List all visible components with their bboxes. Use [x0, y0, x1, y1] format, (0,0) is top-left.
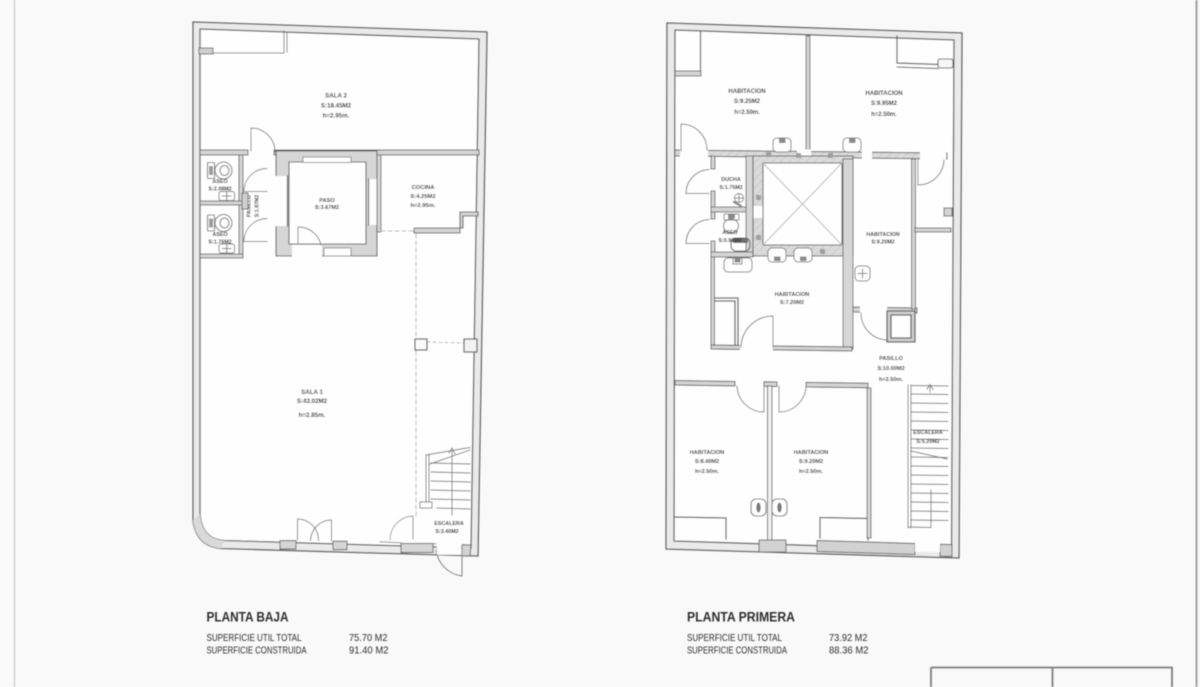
- svg-text:h=2.50m.: h=2.50m.: [871, 112, 897, 118]
- svg-text:PASILLO: PASILLO: [879, 356, 903, 362]
- svg-text:h=2.50m.: h=2.50m.: [734, 110, 760, 116]
- svg-text:h=2.85m.: h=2.85m.: [299, 412, 326, 419]
- svg-text:HABITACION: HABITACION: [775, 292, 810, 298]
- svg-text:S:1.75M2: S:1.75M2: [719, 185, 742, 191]
- svg-text:S:9.95M2: S:9.95M2: [871, 101, 898, 107]
- svg-text:SUPERFICIE UTIL TOTAL: SUPERFICIE UTIL TOTAL: [207, 633, 302, 644]
- svg-text:ESCALERA: ESCALERA: [913, 430, 943, 436]
- svg-text:SUPERFICIE CONSTRUIDA: SUPERFICIE CONSTRUIDA: [687, 646, 787, 657]
- svg-text:h=2.50m.: h=2.50m.: [695, 469, 720, 475]
- svg-text:ASEO: ASEO: [722, 230, 737, 236]
- svg-text:PASO: PASO: [319, 198, 335, 204]
- svg-text:COCINA: COCINA: [412, 185, 436, 191]
- svg-text:h=2.95m.: h=2.95m.: [323, 113, 350, 120]
- svg-text:SALA 1: SALA 1: [301, 389, 323, 396]
- svg-text:S:7.20M2: S:7.20M2: [780, 300, 804, 306]
- svg-text:75.70 M2: 75.70 M2: [349, 633, 388, 644]
- svg-text:S:8.40M2: S:8.40M2: [695, 459, 719, 465]
- svg-text:h=2.95m.: h=2.95m.: [411, 203, 436, 209]
- svg-text:HABITACION: HABITACION: [866, 232, 900, 238]
- svg-text:HABITACION: HABITACION: [794, 450, 829, 456]
- svg-text:S:9.20M2: S:9.20M2: [799, 459, 823, 465]
- svg-text:SUPERFICIE CONSTRUIDA: SUPERFICIE CONSTRUIDA: [207, 646, 307, 657]
- svg-text:S:3.40M2: S:3.40M2: [435, 529, 458, 535]
- svg-text:HABITACION: HABITACION: [690, 450, 725, 456]
- svg-text:73.92 M2: 73.92 M2: [829, 633, 868, 644]
- svg-text:S:9.25M2: S:9.25M2: [734, 99, 761, 105]
- svg-text:HABITACION: HABITACION: [865, 91, 902, 97]
- svg-text:PLANTA PRIMERA: PLANTA PRIMERA: [687, 610, 795, 625]
- svg-text:88.36 M2: 88.36 M2: [829, 646, 869, 657]
- svg-text:91.40 M2: 91.40 M2: [349, 646, 389, 657]
- svg-text:S:0.92M2: S:0.92M2: [718, 238, 741, 244]
- svg-text:S:43.02M2: S:43.02M2: [297, 398, 328, 405]
- svg-text:h=2.50m.: h=2.50m.: [799, 469, 824, 475]
- svg-text:SALA 2: SALA 2: [325, 93, 347, 100]
- svg-text:S:4.25M2: S:4.25M2: [410, 194, 435, 200]
- svg-text:S:10.00M2: S:10.00M2: [877, 366, 904, 372]
- svg-text:S:5.20M2: S:5.20M2: [916, 439, 939, 445]
- svg-text:S:3.67M2: S:3.67M2: [315, 205, 339, 211]
- svg-text:ASEO: ASEO: [212, 179, 227, 185]
- svg-text:HABITACION: HABITACION: [728, 89, 765, 95]
- svg-text:S:18.45M2: S:18.45M2: [321, 103, 352, 110]
- svg-text:DUCHA: DUCHA: [721, 177, 741, 183]
- svg-text:SUPERFICIE UTIL TOTAL: SUPERFICIE UTIL TOTAL: [687, 633, 782, 644]
- svg-text:S:9.20M2: S:9.20M2: [871, 240, 894, 246]
- svg-text:PLANTA BAJA: PLANTA BAJA: [207, 610, 289, 625]
- svg-text:ESCALERA: ESCALERA: [434, 521, 464, 527]
- svg-text:ASEO: ASEO: [212, 232, 227, 238]
- svg-text:S:1.87M2: S:1.87M2: [255, 195, 261, 218]
- svg-text:h=2.50m.: h=2.50m.: [879, 377, 904, 383]
